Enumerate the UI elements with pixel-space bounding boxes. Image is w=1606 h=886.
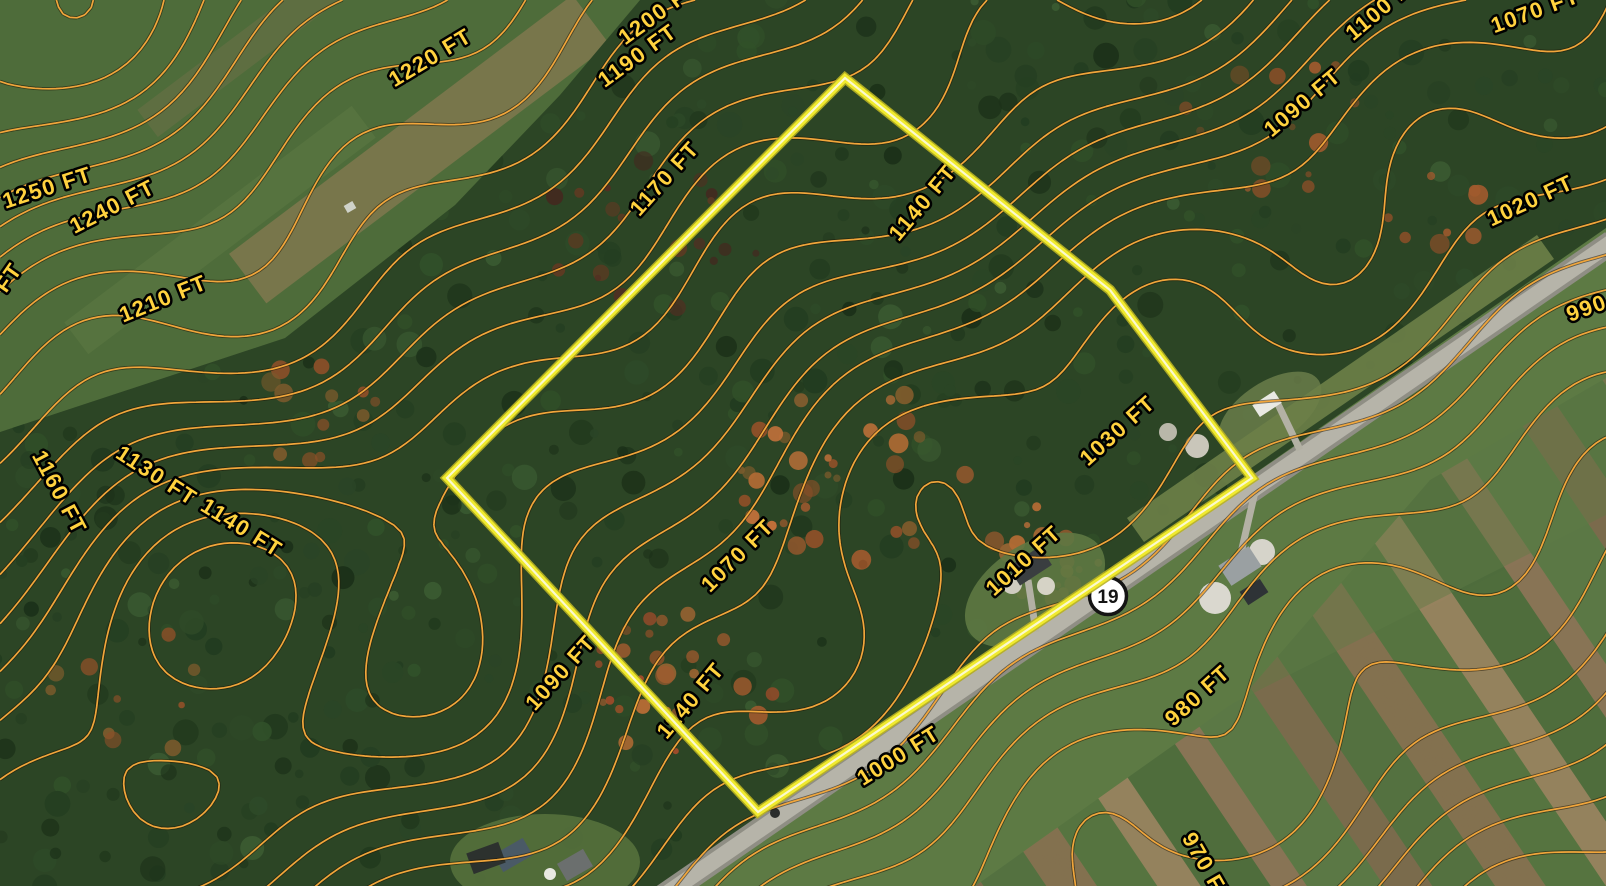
terrain-layer [0, 0, 1606, 886]
satellite-map-canvas[interactable]: 1250 FT1240 FT1220 FT1200 FT1190 FT1170 … [0, 0, 1606, 886]
map-viewport[interactable]: 1250 FT1240 FT1220 FT1200 FT1190 FT1170 … [0, 0, 1606, 886]
route-shield-number: 19 [1097, 587, 1118, 608]
